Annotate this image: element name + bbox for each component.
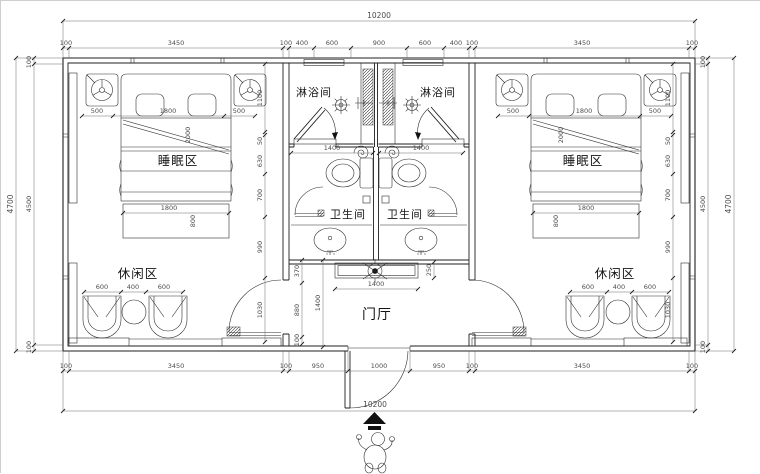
dim: 600 — [96, 283, 108, 291]
door-right-room — [472, 280, 526, 336]
entry-marker — [357, 412, 395, 473]
dim-top-total: 10200 — [367, 11, 391, 20]
dim: 800 — [189, 215, 197, 227]
label-shower-right: 淋浴间 — [420, 86, 456, 99]
dim: 1400 — [324, 144, 341, 152]
left-room — [83, 74, 281, 338]
dim: 3450 — [574, 39, 591, 47]
dim: 3450 — [168, 39, 185, 47]
dim-right-outer: 4700 — [724, 194, 733, 213]
dim: 100 — [25, 341, 33, 353]
side-table-left — [122, 300, 146, 324]
dim: 600 — [158, 283, 170, 291]
dim: 100 — [293, 334, 301, 346]
dim: 1800 — [161, 204, 178, 212]
dim: 1800 — [578, 204, 595, 212]
dim: 50 — [664, 137, 672, 145]
paper-holder-left — [354, 146, 368, 158]
label-toilet-left: 卫生间 — [330, 207, 366, 221]
sink-right — [405, 228, 437, 255]
toilet-right — [379, 158, 426, 188]
shower-door-right — [415, 107, 464, 144]
dim: 900 — [373, 39, 385, 47]
dim: 500 — [649, 107, 661, 115]
door-stop-right — [382, 196, 389, 203]
dim: 100 — [60, 362, 72, 370]
dim: 1030 — [664, 302, 672, 319]
dim: 100 — [280, 362, 292, 370]
door-stop-left — [363, 196, 370, 203]
dim-left-outer: 4700 — [6, 194, 15, 213]
dim: 400 — [296, 39, 308, 47]
dim: 100 — [699, 56, 707, 68]
entry-arrow-icon — [363, 412, 386, 424]
dim: 100 — [280, 39, 292, 47]
nightstand-right-1 — [496, 74, 528, 106]
dim: 100 — [25, 56, 33, 68]
paper-holder-right — [385, 146, 399, 158]
label-leisure-left: 休闲区 — [118, 266, 159, 281]
dim-bottom-total: 10200 — [363, 400, 387, 409]
toilet-door-right — [428, 187, 457, 217]
shower-partition-right — [383, 69, 393, 125]
dim: 400 — [450, 39, 462, 47]
right-room — [472, 74, 676, 338]
dim: 1400 — [314, 295, 322, 312]
nightstand-left-1 — [86, 74, 118, 106]
dim: 100 — [466, 362, 478, 370]
toilet-left — [326, 158, 373, 188]
dim: 1000 — [371, 362, 388, 370]
dim: 700 — [256, 189, 264, 201]
dim: 630 — [256, 155, 264, 167]
label-foyer: 门厅 — [362, 307, 392, 323]
dim: 990 — [256, 241, 264, 253]
door-left-room — [227, 280, 281, 336]
label-leisure-right: 休闲区 — [595, 266, 636, 281]
dim: 950 — [312, 362, 324, 370]
dim: 500 — [91, 107, 103, 115]
core-walls — [283, 63, 475, 346]
label-toilet-right: 卫生间 — [387, 207, 423, 221]
label-sleep-left: 睡眠区 — [158, 153, 199, 168]
dim: 600 — [644, 283, 656, 291]
dim: 1100 — [256, 90, 264, 107]
toilet-door-left — [295, 187, 324, 217]
dim: 4500 — [699, 196, 707, 213]
dim: 630 — [664, 155, 672, 167]
sink-left — [314, 228, 346, 255]
dim: 1400 — [413, 144, 430, 152]
dim: 800 — [552, 215, 560, 227]
drain-left — [332, 96, 350, 114]
floor-plan-canvas: 10200 100 3450 100 400 600 900 600 400 1… — [0, 0, 760, 473]
dimension-lines — [14, 19, 736, 413]
label-shower-left: 淋浴间 — [296, 86, 332, 99]
dim: 600 — [326, 39, 338, 47]
chair-right-1 — [566, 296, 604, 338]
dim: 100 — [686, 362, 698, 370]
dim: 400 — [127, 283, 139, 291]
dim: 3450 — [168, 362, 185, 370]
dim: 400 — [613, 283, 625, 291]
dim: 100 — [699, 341, 707, 353]
dim: 1800 — [576, 107, 593, 115]
side-table-right — [606, 300, 630, 324]
dim: 1030 — [256, 302, 264, 319]
chair-left-2 — [149, 296, 187, 338]
dim: 600 — [582, 283, 594, 291]
floor-plan-drawing: 10200 100 3450 100 400 600 900 600 400 1… — [1, 1, 760, 474]
label-sleep-right: 睡眠区 — [563, 153, 604, 168]
shower-door-left — [294, 107, 338, 144]
dim: 2000 — [557, 127, 565, 144]
dim: 950 — [433, 362, 445, 370]
chair-left-1 — [83, 296, 121, 338]
dim: 250 — [425, 264, 433, 276]
dim: 3450 — [574, 362, 591, 370]
dim: 100 — [466, 39, 478, 47]
dim: 100 — [686, 39, 698, 47]
dim: 370 — [293, 265, 301, 277]
shower-partition-left — [363, 69, 373, 125]
dim: 600 — [419, 39, 431, 47]
dim: 500 — [507, 107, 519, 115]
dim: 2000 — [184, 127, 192, 144]
dim: 700 — [664, 189, 672, 201]
dim: 50 — [256, 137, 264, 145]
dim: 100 — [60, 39, 72, 47]
person-icon — [357, 433, 395, 474]
dim: 1800 — [160, 107, 177, 115]
dim: 1100 — [664, 90, 672, 107]
dim: 990 — [664, 241, 672, 253]
dim: 500 — [233, 107, 245, 115]
drain-right — [403, 96, 421, 114]
shower-rooms — [294, 96, 464, 144]
dim: 1400 — [368, 280, 385, 288]
dim: 4500 — [25, 196, 33, 213]
dim: 880 — [293, 304, 301, 316]
toilet-rooms — [295, 146, 457, 255]
